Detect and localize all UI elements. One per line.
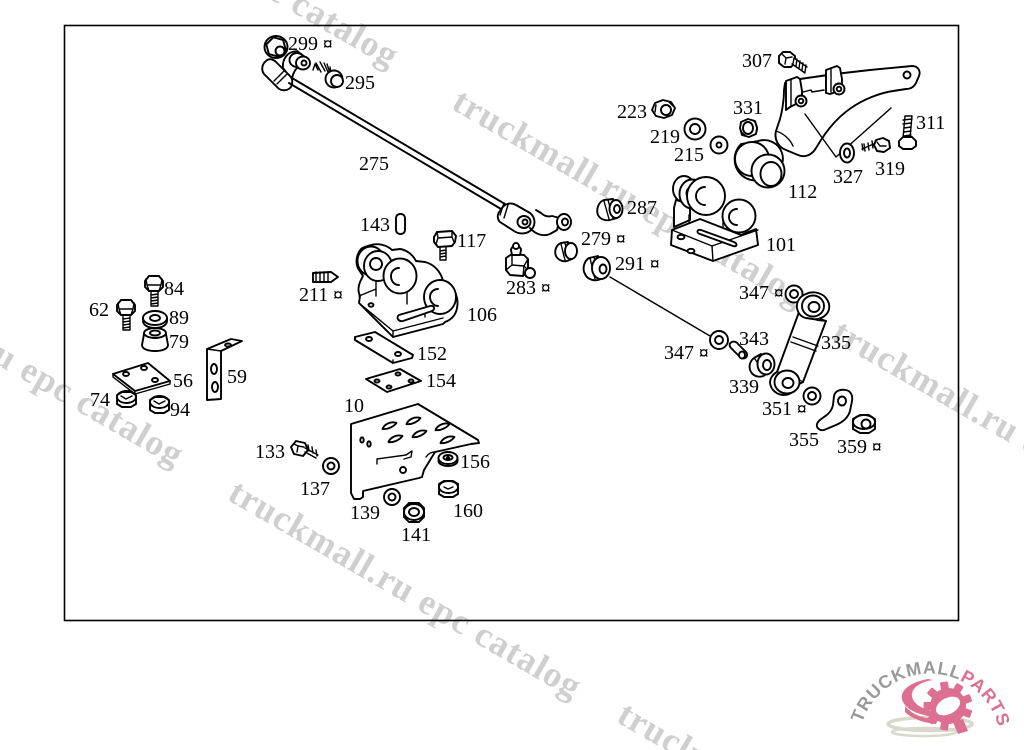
- svg-text:295: 295: [345, 72, 375, 94]
- svg-text:56: 56: [173, 370, 193, 392]
- svg-text:343: 343: [739, 328, 769, 350]
- svg-text:359 ¤: 359 ¤: [837, 436, 882, 458]
- svg-text:339: 339: [729, 376, 759, 398]
- svg-text:215: 215: [674, 144, 704, 166]
- svg-text:279 ¤: 279 ¤: [581, 228, 626, 250]
- svg-text:156: 156: [460, 451, 490, 473]
- svg-text:117: 117: [457, 230, 486, 252]
- svg-text:74: 74: [90, 389, 110, 411]
- svg-text:311: 311: [916, 112, 945, 134]
- svg-text:89: 89: [169, 307, 189, 329]
- svg-text:291 ¤: 291 ¤: [615, 253, 660, 275]
- svg-text:307: 307: [742, 50, 772, 72]
- svg-text:287: 287: [627, 197, 657, 219]
- svg-text:283 ¤: 283 ¤: [506, 277, 551, 299]
- svg-text:327: 327: [833, 166, 863, 188]
- svg-text:223: 223: [617, 101, 647, 123]
- svg-text:351 ¤: 351 ¤: [762, 398, 807, 420]
- svg-text:154: 154: [426, 370, 456, 392]
- svg-text:331: 331: [733, 97, 763, 119]
- svg-text:133: 133: [255, 441, 285, 463]
- svg-text:143: 143: [360, 214, 390, 236]
- svg-text:335: 335: [821, 332, 851, 354]
- svg-text:211 ¤: 211 ¤: [299, 284, 343, 306]
- svg-text:141: 141: [401, 524, 431, 546]
- svg-text:347 ¤: 347 ¤: [664, 342, 709, 364]
- svg-text:62: 62: [89, 299, 109, 321]
- svg-text:355: 355: [789, 429, 819, 451]
- svg-text:79: 79: [169, 331, 189, 353]
- svg-text:275: 275: [359, 153, 389, 175]
- svg-text:137: 137: [300, 478, 330, 500]
- svg-text:160: 160: [453, 500, 483, 522]
- svg-text:319: 319: [875, 158, 905, 180]
- svg-text:152: 152: [417, 343, 447, 365]
- svg-text:347 ¤: 347 ¤: [739, 282, 784, 304]
- svg-text:139: 139: [350, 502, 380, 524]
- svg-text:10: 10: [344, 395, 364, 417]
- svg-text:106: 106: [467, 304, 497, 326]
- svg-text:299 ¤: 299 ¤: [288, 33, 333, 55]
- svg-text:94: 94: [170, 399, 190, 421]
- svg-text:112: 112: [788, 181, 817, 203]
- svg-text:101: 101: [766, 234, 796, 256]
- svg-text:59: 59: [227, 366, 247, 388]
- svg-text:84: 84: [164, 278, 184, 300]
